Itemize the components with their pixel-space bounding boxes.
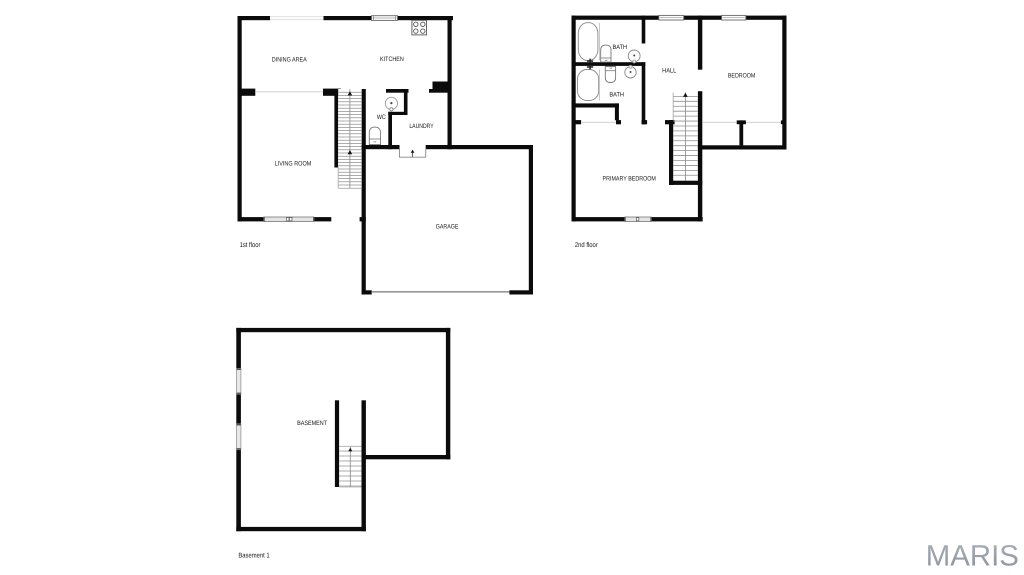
svg-text:WC: WC	[377, 114, 386, 121]
svg-text:LIVING ROOM: LIVING ROOM	[275, 160, 312, 167]
svg-text:PRIMARY BEDROOM: PRIMARY BEDROOM	[603, 175, 656, 182]
svg-text:DINING AREA: DINING AREA	[272, 56, 308, 63]
svg-text:HALL: HALL	[662, 68, 676, 75]
svg-text:LAUNDRY: LAUNDRY	[409, 123, 434, 130]
svg-text:BATH: BATH	[613, 44, 628, 51]
svg-text:1st floor: 1st floor	[240, 241, 261, 249]
svg-text:KITCHEN: KITCHEN	[380, 56, 404, 63]
svg-text:BEDROOM: BEDROOM	[728, 73, 755, 80]
svg-text:GARAGE: GARAGE	[436, 224, 459, 231]
svg-text:MARIS: MARIS	[926, 539, 1019, 572]
svg-text:Basement 1: Basement 1	[238, 552, 269, 559]
svg-text:BATH: BATH	[609, 92, 624, 99]
svg-text:BASEMENT: BASEMENT	[297, 420, 327, 427]
svg-text:2nd floor: 2nd floor	[575, 241, 598, 249]
